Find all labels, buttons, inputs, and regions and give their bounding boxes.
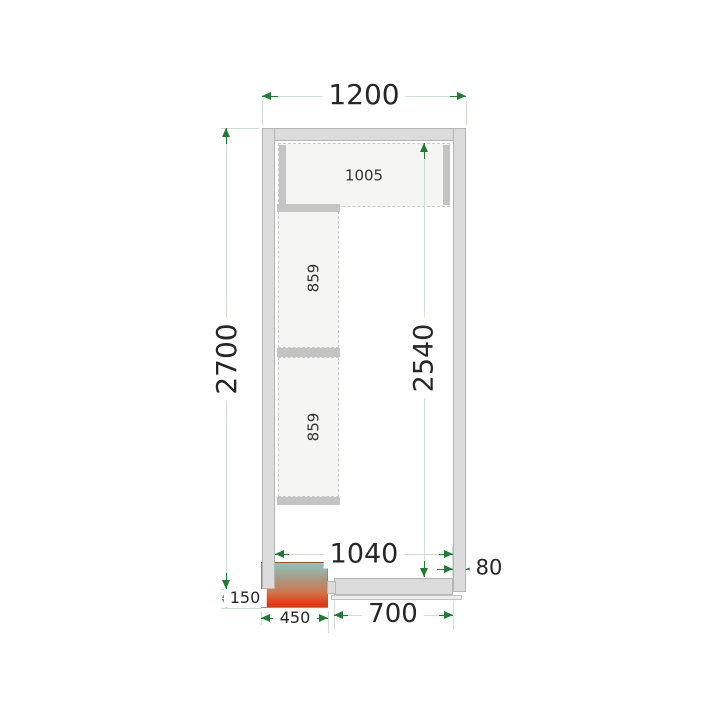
dim-overall-width-arrow-right <box>457 92 466 100</box>
wall-top <box>262 128 466 141</box>
dim-interior-width-arrow-right <box>444 550 453 558</box>
shelf-top-support-left <box>279 145 286 205</box>
dim-wall-thickness-label: 80 <box>470 557 509 580</box>
dim-interior-width-label: 1040 <box>324 540 405 569</box>
dim-unit-protrusion-ext-bottom <box>221 608 262 609</box>
dim-interior-width-arrow-left <box>275 550 284 558</box>
dim-door-panel-label: 700 <box>362 600 424 628</box>
dim-unit-width-arrow-left <box>261 614 270 622</box>
shelf-top-label: 1005 <box>345 169 383 184</box>
shelf-top-support-right <box>443 145 450 205</box>
shelf-left-upper-label: 859 <box>307 264 322 293</box>
dim-interior-depth-arrow-bottom <box>420 568 428 577</box>
dim-overall-width-arrow-left <box>262 92 271 100</box>
dim-door-panel-arrow-right <box>444 611 453 619</box>
dim-interior-depth-label: 2540 <box>410 318 439 399</box>
dim-unit-width-arrow-right <box>319 614 328 622</box>
dim-unit-width-label: 450 <box>274 609 317 627</box>
dim-overall-width-ext-left <box>262 101 263 125</box>
dim-overall-depth-arrow-top <box>222 128 230 137</box>
dim-interior-depth-arrow-top <box>420 143 428 152</box>
wall-right <box>453 128 466 592</box>
shelf-col-cap-top <box>277 204 340 212</box>
dim-overall-width-label: 1200 <box>322 80 405 110</box>
shelf-left-lower-label: 859 <box>307 413 322 442</box>
wall-left <box>262 128 275 589</box>
shelf-col-cap-bottom <box>277 497 340 505</box>
dim-unit-width-ext-right <box>328 611 329 633</box>
wall-bottom-panel <box>334 578 453 595</box>
dim-overall-width-ext-right <box>466 101 467 125</box>
dim-overall-depth-label: 2700 <box>212 317 242 400</box>
wall-bottom-notch <box>327 581 336 594</box>
shelf-col-divider <box>277 348 340 357</box>
floor-plan-drawing: 1005 859 859 1200 2700 2540 1040 80 150 <box>0 0 720 720</box>
dim-door-panel-ext-right <box>453 601 454 630</box>
dim-door-panel-arrow-left <box>334 611 343 619</box>
dim-unit-protrusion-label: 150 <box>224 589 267 607</box>
dim-wall-thickness-arrow-left <box>444 565 453 573</box>
